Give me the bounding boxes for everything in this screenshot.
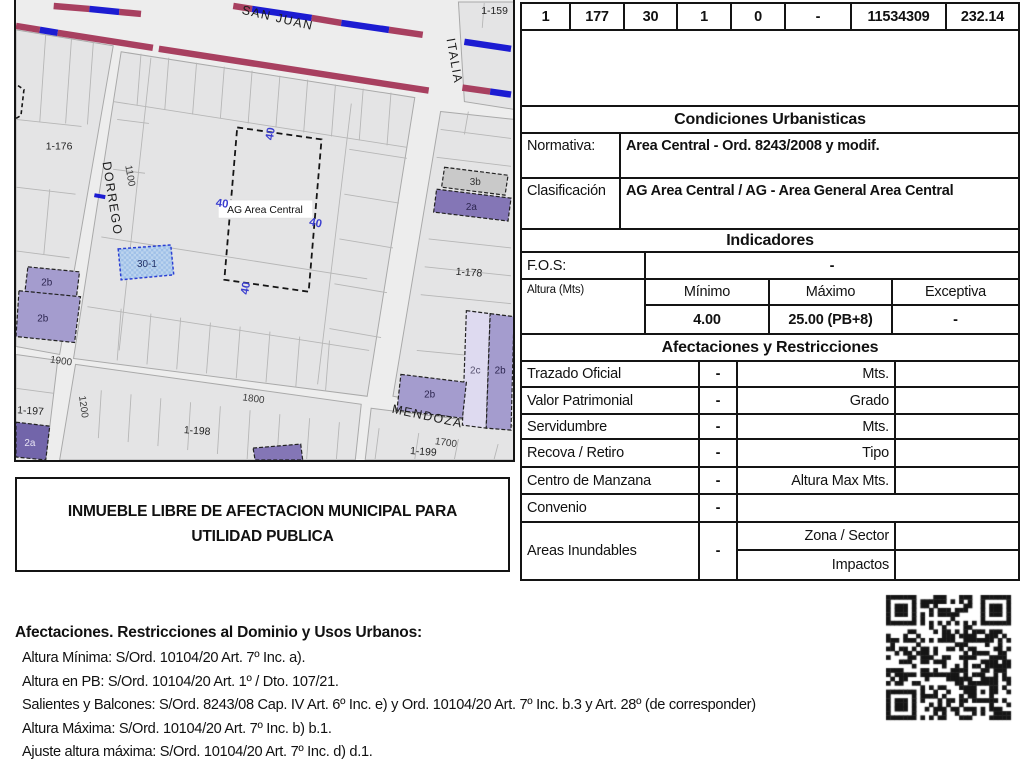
document-page: { "top_row": {"cells": ["1", "177", "30"… <box>0 0 1024 768</box>
row-unit: Zona / Sector <box>738 523 896 549</box>
row-label: Clasificación <box>522 179 621 228</box>
svg-text:2b: 2b <box>495 365 506 376</box>
svg-text:3b: 3b <box>470 177 481 188</box>
cell-value: 0 <box>732 4 786 29</box>
section-title-condiciones: Condiciones Urbanisticas <box>522 107 1018 132</box>
cadastral-map: AG Area Central 40 40 40 40 30-1 SAN JUA… <box>14 0 515 462</box>
row-value: Area Central - Ord. 8243/2008 y modif. <box>621 134 1018 177</box>
cell-value: 232.14 <box>947 4 1018 29</box>
row-value: - <box>700 440 738 466</box>
svg-text:2b: 2b <box>37 314 48 325</box>
svg-text:2a: 2a <box>466 202 477 213</box>
svg-text:2b: 2b <box>424 389 435 400</box>
afectacion-row: Centro de Manzana - Altura Max Mts. <box>522 468 1018 495</box>
svg-text:40: 40 <box>308 216 323 230</box>
afectacion-row: Trazado Oficial - Mts. <box>522 362 1018 388</box>
row-unit: Altura Max Mts. <box>738 468 896 493</box>
urbanistic-table: 1 177 30 1 0 - 11534309 232.14 Condicion… <box>520 2 1020 581</box>
altura-label: Altura (Mts) <box>522 280 646 333</box>
row-label: Servidumbre <box>522 415 700 438</box>
notice-text: INMUEBLE LIBRE DE AFECTACION MUNICIPAL P… <box>45 500 480 548</box>
svg-text:40: 40 <box>239 281 253 296</box>
svg-text:2b: 2b <box>41 278 52 289</box>
footer-line: Altura Mínima: S/Ord. 10104/20 Art. 7º I… <box>22 650 1015 666</box>
row-unit: Impactos <box>738 551 896 579</box>
area-label: AG Area Central <box>227 205 303 216</box>
altura-value: 4.00 <box>646 306 770 333</box>
footer-line: Altura en PB: S/Ord. 10104/20 Art. 1º / … <box>22 674 1015 690</box>
empty-box <box>522 31 1018 107</box>
parcel-30-1-label: 30-1 <box>137 259 157 270</box>
afectacion-row: Servidumbre - Mts. <box>522 415 1018 440</box>
afectacion-row: Recova / Retiro - Tipo <box>522 440 1018 468</box>
fos-value: - <box>646 253 1018 278</box>
row-label: Convenio <box>522 495 700 521</box>
footer-line: Ajuste altura máxima: S/Ord. 10104/20 Ar… <box>22 744 1015 760</box>
svg-text:40: 40 <box>264 127 278 142</box>
row-unit: Mts. <box>738 362 896 386</box>
notice-box: INMUEBLE LIBRE DE AFECTACION MUNICIPAL P… <box>15 477 510 572</box>
svg-text:1-159: 1-159 <box>481 6 508 17</box>
footer-title: Afectaciones. Restricciones al Dominio y… <box>15 624 1015 642</box>
altura-col-header: Máximo <box>770 280 893 304</box>
svg-text:1-178: 1-178 <box>455 267 483 280</box>
row-unit: Tipo <box>738 440 896 466</box>
row-value: AG Area Central / AG - Area General Area… <box>621 179 1018 228</box>
svg-text:2a: 2a <box>24 438 35 449</box>
svg-text:1-198: 1-198 <box>183 425 211 438</box>
cell-value: - <box>786 4 852 29</box>
row-label: Recova / Retiro <box>522 440 700 466</box>
afectacion-row-convenio: Convenio - <box>522 495 1018 523</box>
row-unit: Mts. <box>738 415 896 438</box>
row-label: Areas Inundables <box>522 523 700 579</box>
footer-notes: Afectaciones. Restricciones al Dominio y… <box>15 624 1015 768</box>
row-value: - <box>700 495 738 521</box>
footer-line: Altura Máxima: S/Ord. 10104/20 Art. 7º I… <box>22 721 1015 737</box>
row-value: - <box>700 523 738 579</box>
row-label: Centro de Manzana <box>522 468 700 493</box>
altura-value: - <box>893 306 1018 333</box>
altura-col-header: Mínimo <box>646 280 770 304</box>
svg-text:1-176: 1-176 <box>46 141 73 152</box>
cell-value: 11534309 <box>852 4 947 29</box>
svg-text:1-197: 1-197 <box>17 405 45 418</box>
row-value: - <box>700 415 738 438</box>
footer-line: Salientes y Balcones: S/Ord. 8243/08 Cap… <box>22 697 1015 713</box>
section-title-indicadores: Indicadores <box>522 230 1018 251</box>
qr-code <box>877 586 1019 728</box>
cell-value: 1 <box>522 4 571 29</box>
cell-value: 177 <box>571 4 625 29</box>
row-value: - <box>700 362 738 386</box>
altura-col-header: Exceptiva <box>893 280 1018 304</box>
row-label: Trazado Oficial <box>522 362 700 386</box>
row-value: - <box>700 468 738 493</box>
afectacion-row: Valor Patrimonial - Grado <box>522 388 1018 415</box>
row-unit: Grado <box>738 388 896 413</box>
cell-value: 1 <box>678 4 732 29</box>
altura-value: 25.00 (PB+8) <box>770 306 893 333</box>
top-data-row: 1 177 30 1 0 - 11534309 232.14 <box>522 4 1018 31</box>
fos-label: F.O.S: <box>522 253 646 278</box>
row-value: - <box>700 388 738 413</box>
row-label: Valor Patrimonial <box>522 388 700 413</box>
svg-text:40: 40 <box>215 197 229 211</box>
row-label: Normativa: <box>522 134 621 177</box>
cell-value: 30 <box>625 4 678 29</box>
section-title-afectaciones: Afectaciones y Restricciones <box>522 335 1018 360</box>
svg-text:1-199: 1-199 <box>410 446 438 459</box>
afectacion-row-inundables: Areas Inundables - Zona / Sector Impacto… <box>522 523 1018 579</box>
svg-text:2c: 2c <box>470 365 480 376</box>
